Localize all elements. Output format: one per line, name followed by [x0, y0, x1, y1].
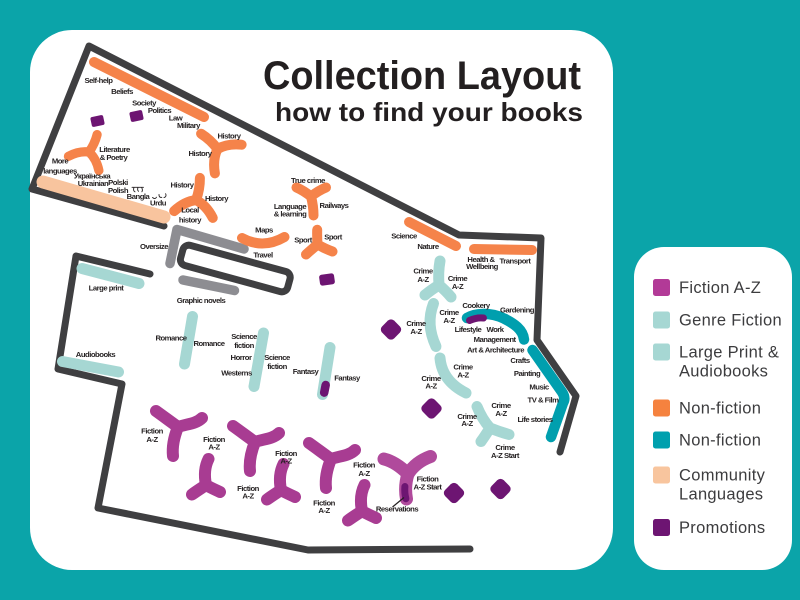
- svg-text:Painting: Painting: [514, 369, 541, 378]
- svg-text:Reservations: Reservations: [376, 505, 419, 514]
- svg-text:A-Z: A-Z: [358, 469, 370, 478]
- svg-text:Maps: Maps: [255, 226, 273, 235]
- svg-text:Horror: Horror: [231, 353, 252, 362]
- svg-text:Travel: Travel: [253, 251, 273, 260]
- svg-text:fiction: fiction: [234, 341, 254, 350]
- svg-text:Gardening: Gardening: [500, 306, 535, 315]
- svg-text:history: history: [179, 216, 202, 225]
- svg-text:Non-fiction: Non-fiction: [679, 432, 761, 450]
- svg-text:Large Print &: Large Print &: [679, 344, 779, 362]
- svg-text:Nature: Nature: [417, 242, 440, 251]
- svg-text:Self-help: Self-help: [85, 76, 114, 85]
- svg-text:Community: Community: [679, 467, 766, 485]
- svg-text:Science: Science: [231, 332, 258, 341]
- svg-text:Management: Management: [474, 335, 517, 344]
- svg-text:History: History: [171, 181, 195, 190]
- svg-text:Graphic novels: Graphic novels: [177, 296, 226, 305]
- svg-text:fiction: fiction: [267, 362, 287, 371]
- svg-text:Wellbeing: Wellbeing: [466, 262, 498, 271]
- svg-text:TV & Film: TV & Film: [528, 396, 560, 405]
- svg-text:Romance: Romance: [193, 339, 225, 348]
- svg-text:A-Z: A-Z: [410, 327, 422, 336]
- svg-text:History: History: [205, 194, 229, 203]
- svg-text:Transport: Transport: [500, 257, 532, 266]
- svg-text:Genre Fiction: Genre Fiction: [679, 312, 782, 330]
- svg-text:Fantasy: Fantasy: [334, 374, 361, 383]
- svg-text:Life stories: Life stories: [517, 415, 552, 424]
- svg-text:Sport: Sport: [324, 233, 343, 242]
- svg-text:Work: Work: [486, 325, 504, 334]
- svg-text:A-Z: A-Z: [443, 316, 455, 325]
- svg-text:Railways: Railways: [320, 201, 349, 210]
- svg-text:True crime: True crime: [291, 176, 326, 185]
- svg-text:More: More: [52, 157, 70, 166]
- svg-text:Non-fiction: Non-fiction: [679, 400, 761, 418]
- svg-text:Bangla: Bangla: [127, 192, 151, 201]
- svg-text:Collection Layout: Collection Layout: [263, 54, 581, 98]
- svg-text:A-Z: A-Z: [495, 409, 507, 418]
- svg-text:& Poetry: & Poetry: [100, 153, 129, 162]
- svg-text:Lifestyle: Lifestyle: [455, 325, 483, 334]
- svg-text:Science: Science: [264, 353, 291, 362]
- svg-text:A-Z: A-Z: [280, 457, 292, 466]
- svg-text:A-Z: A-Z: [425, 382, 437, 391]
- svg-text:Oversize: Oversize: [140, 242, 169, 251]
- svg-text:Promotions: Promotions: [679, 519, 765, 537]
- svg-text:Art & Architecture: Art & Architecture: [467, 346, 525, 355]
- svg-text:A-Z: A-Z: [452, 282, 464, 291]
- svg-text:Local: Local: [181, 206, 199, 215]
- svg-text:Urdu: Urdu: [150, 199, 167, 208]
- svg-text:Music: Music: [529, 383, 550, 392]
- svg-text:A-Z: A-Z: [417, 275, 429, 284]
- svg-text:Military: Military: [177, 121, 201, 130]
- svg-text:how to find your books: how to find your books: [275, 97, 583, 127]
- svg-text:Crafts: Crafts: [510, 356, 529, 365]
- svg-text:Beliefs: Beliefs: [111, 87, 133, 96]
- svg-text:Ukrainian: Ukrainian: [78, 179, 109, 188]
- svg-text:A-Z Start: A-Z Start: [491, 451, 520, 460]
- svg-text:languages: languages: [43, 167, 77, 176]
- svg-text:Cookery: Cookery: [462, 301, 490, 310]
- svg-text:Sport: Sport: [294, 236, 313, 245]
- svg-text:A-Z: A-Z: [242, 492, 254, 501]
- svg-text:& learning: & learning: [274, 210, 307, 219]
- svg-text:Audiobooks: Audiobooks: [679, 363, 768, 381]
- svg-text:A-Z Start: A-Z Start: [414, 483, 443, 492]
- svg-text:Romance: Romance: [155, 334, 187, 343]
- svg-text:A-Z: A-Z: [461, 419, 473, 428]
- svg-text:Fiction A-Z: Fiction A-Z: [679, 279, 761, 297]
- svg-text:A-Z: A-Z: [318, 506, 330, 515]
- svg-text:History: History: [189, 149, 213, 158]
- svg-text:Languages: Languages: [679, 486, 763, 504]
- svg-text:Science: Science: [391, 232, 418, 241]
- svg-text:Westerns: Westerns: [221, 369, 252, 378]
- svg-text:Fantasy: Fantasy: [293, 367, 320, 376]
- svg-text:A-Z: A-Z: [146, 435, 158, 444]
- svg-text:Audiobooks: Audiobooks: [76, 350, 116, 359]
- svg-text:Large print: Large print: [89, 284, 125, 293]
- svg-text:A-Z: A-Z: [457, 371, 469, 380]
- svg-text:A-Z: A-Z: [208, 443, 220, 452]
- svg-text:History: History: [218, 132, 242, 141]
